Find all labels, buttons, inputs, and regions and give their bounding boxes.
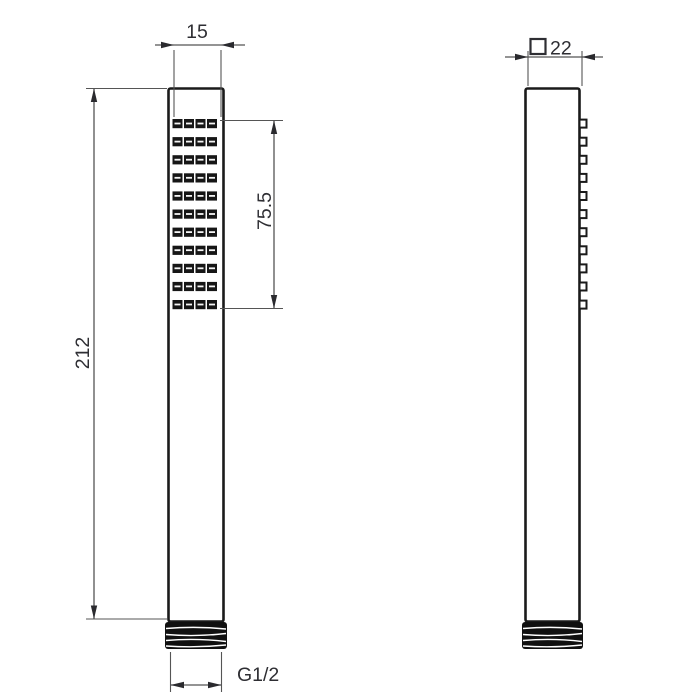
side-nozzle-bump — [580, 138, 587, 146]
side-nozzle-bump — [580, 156, 587, 164]
nozzle-slit — [209, 267, 215, 269]
nozzle-slit — [175, 141, 181, 143]
nozzle-slit — [175, 286, 181, 288]
nozzle-slit — [186, 249, 192, 251]
nozzle-slit — [209, 231, 215, 233]
arrow-down-icon — [271, 295, 277, 309]
side-nozzle-bump — [580, 210, 587, 218]
dimension-depth: 22 — [505, 38, 603, 87]
nozzle-slit — [198, 213, 204, 215]
side-nozzle-bump — [580, 228, 587, 236]
nozzle-slit — [175, 231, 181, 233]
technical-drawing-canvas: 15 75.5 212 — [0, 0, 700, 700]
nozzle-slit — [175, 267, 181, 269]
side-body-outline — [526, 89, 580, 622]
side-nozzle-bump — [580, 192, 587, 200]
nozzle-slit — [186, 267, 192, 269]
nozzle-slit — [186, 159, 192, 161]
nozzle-slit — [209, 213, 215, 215]
dimension-depth-label: 22 — [550, 38, 572, 60]
nozzle-slit — [186, 195, 192, 197]
dimension-width-label: 15 — [186, 21, 208, 43]
nozzle-slit — [209, 249, 215, 251]
nozzle-slit — [175, 195, 181, 197]
drawing-svg: 15 75.5 212 — [0, 0, 700, 700]
dimension-total-length-label: 212 — [72, 337, 94, 370]
nozzle-slit — [175, 159, 181, 161]
nozzle-slit — [198, 249, 204, 251]
arrow-left-icon — [171, 682, 185, 688]
side-nozzle-bump — [580, 264, 587, 272]
nozzle-slit — [186, 231, 192, 233]
nozzle-slit — [198, 304, 204, 306]
side-nozzle-bump — [580, 301, 587, 309]
side-nozzle-bump — [580, 283, 587, 291]
nozzle-slit — [198, 177, 204, 179]
nozzle-slit — [209, 286, 215, 288]
nozzle-slit — [209, 177, 215, 179]
nozzle-slit — [209, 123, 215, 125]
arrow-up-icon — [271, 121, 277, 135]
nozzle-slit — [186, 177, 192, 179]
nozzle-slit — [175, 213, 181, 215]
nozzle-slit — [198, 123, 204, 125]
side-thread — [522, 622, 583, 649]
nozzle-slit — [198, 195, 204, 197]
nozzle-slit — [186, 286, 192, 288]
nozzle-slit — [175, 249, 181, 251]
nozzle-slit — [209, 141, 215, 143]
nozzle-slit — [198, 231, 204, 233]
nozzle-slit — [209, 304, 215, 306]
nozzle-slit — [175, 177, 181, 179]
nozzle-slit — [198, 286, 204, 288]
nozzle-slit — [209, 195, 215, 197]
dimension-thread-label: G1/2 — [237, 664, 279, 686]
side-nozzle-bump — [580, 174, 587, 182]
nozzle-slit — [198, 267, 204, 269]
nozzle-slit — [209, 159, 215, 161]
front-thread — [165, 622, 227, 649]
front-view: 15 75.5 212 — [72, 21, 283, 692]
square-section-symbol-icon — [531, 39, 546, 54]
arrow-down-icon — [91, 606, 97, 620]
dimension-nozzle-area: 75.5 — [220, 121, 283, 309]
nozzle-slit — [186, 141, 192, 143]
front-body-outline — [169, 89, 224, 622]
nozzle-slit — [186, 304, 192, 306]
arrow-left-icon — [221, 42, 234, 48]
nozzle-slit — [186, 213, 192, 215]
nozzle-slit — [186, 123, 192, 125]
nozzle-slit — [175, 123, 181, 125]
dimension-thread: G1/2 — [171, 652, 280, 692]
side-nozzle-bump — [580, 246, 587, 254]
arrow-right-icon — [515, 54, 528, 60]
arrow-right-icon — [208, 682, 222, 688]
side-nozzle-bump — [580, 120, 587, 128]
arrow-right-icon — [161, 42, 174, 48]
dimension-nozzle-area-label: 75.5 — [254, 192, 276, 230]
dimension-total-length: 212 — [72, 89, 167, 620]
nozzle-slit — [198, 159, 204, 161]
arrow-up-icon — [91, 89, 97, 103]
side-view: 22 — [505, 38, 603, 650]
nozzle-slit — [175, 304, 181, 306]
arrow-left-icon — [582, 54, 595, 60]
nozzle-slit — [198, 141, 204, 143]
